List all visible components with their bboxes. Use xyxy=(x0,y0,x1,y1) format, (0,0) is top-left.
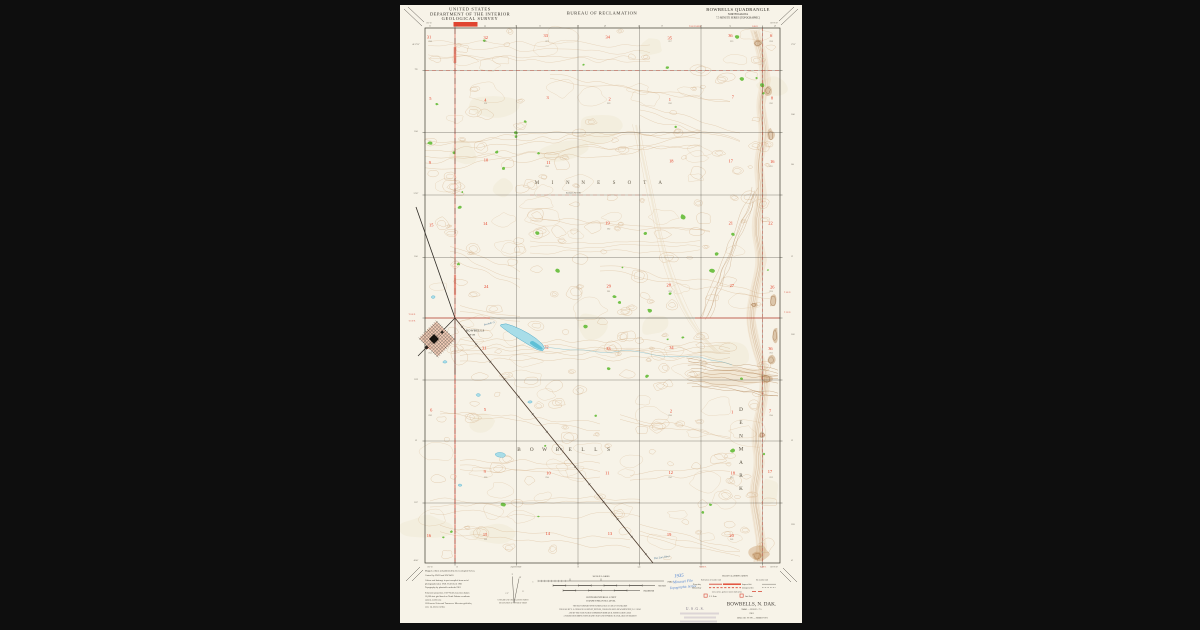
svg-text:1901: 1901 xyxy=(484,539,488,541)
svg-text:102°07'30": 102°07'30" xyxy=(770,22,778,25)
svg-text:2: 2 xyxy=(608,97,610,102)
svg-text:A FOLDER DESCRIBING TOPOGRAPHI: A FOLDER DESCRIBING TOPOGRAPHIC MAPS AND… xyxy=(563,615,637,618)
svg-text:S: S xyxy=(607,447,610,453)
svg-text:system, north zone: system, north zone xyxy=(425,600,441,602)
svg-text:D: D xyxy=(739,407,743,413)
svg-text:Culture and drainage in part c: Culture and drainage in part compiled fr… xyxy=(425,579,469,582)
svg-text:BOWBELLS: BOWBELLS xyxy=(466,329,485,333)
svg-text:M: M xyxy=(535,181,540,186)
svg-text:zone 14, shown in blue: zone 14, shown in blue xyxy=(425,607,445,609)
svg-text:ROAD CLASSIFICATION: ROAD CLASSIFICATION xyxy=(722,575,748,578)
svg-text:Control by USGS and USC&GS: Control by USGS and USC&GS xyxy=(425,575,454,577)
svg-text:2538: 2538 xyxy=(791,524,795,526)
svg-text:102°15': 102°15' xyxy=(426,22,432,25)
svg-text:1968: 1968 xyxy=(428,41,432,43)
svg-text:R.88.W: R.88.W xyxy=(752,26,758,28)
svg-text:Bowbells No 1 SE: Bowbells No 1 SE xyxy=(566,193,582,195)
svg-text:N: N xyxy=(566,181,570,186)
svg-text:T. 160 N.: T. 160 N. xyxy=(760,566,767,568)
svg-text:1942: 1942 xyxy=(668,477,672,479)
svg-text:AND BY THE STATE WATER COMMISS: AND BY THE STATE WATER COMMISSION BISMAR… xyxy=(569,611,632,614)
svg-text:Heavy-duty: Heavy-duty xyxy=(693,584,701,586)
svg-text:Topography by planetable metho: Topography by planetable methods 1961 xyxy=(425,586,461,589)
svg-text:1946: 1946 xyxy=(428,352,432,354)
svg-text:State Route: State Route xyxy=(745,596,753,598)
svg-text:57'30": 57'30" xyxy=(791,44,796,46)
svg-text:1944: 1944 xyxy=(545,477,549,479)
svg-text:1908: 1908 xyxy=(769,41,773,43)
svg-text:1923: 1923 xyxy=(730,41,734,43)
svg-text:25: 25 xyxy=(429,26,431,28)
svg-text:1926: 1926 xyxy=(484,477,488,479)
svg-text:1966: 1966 xyxy=(668,415,672,417)
svg-text:Mapped, edited, and published: Mapped, edited, and published by the Geo… xyxy=(425,570,476,573)
svg-text:1000-meter Universal Transvers: 1000-meter Universal Transverse Mercator… xyxy=(425,602,472,605)
svg-text:N: N xyxy=(581,181,585,186)
svg-text:1945: 1945 xyxy=(730,539,734,541)
svg-text:A: A xyxy=(658,181,662,186)
svg-text:SCALE 1:24000: SCALE 1:24000 xyxy=(593,575,610,578)
svg-text:1969: 1969 xyxy=(428,415,432,417)
svg-text:11: 11 xyxy=(546,160,550,165)
svg-text:POP 588: POP 588 xyxy=(468,334,475,336)
svg-text:1961: 1961 xyxy=(607,291,611,293)
svg-text:47: 47 xyxy=(456,26,458,28)
svg-text:BUREAU OF RECLAMATION: BUREAU OF RECLAMATION xyxy=(567,11,638,16)
svg-text:68: 68 xyxy=(577,26,579,28)
svg-text:E: E xyxy=(739,420,742,426)
svg-text:48°57'30": 48°57'30" xyxy=(412,43,419,46)
svg-text:GEOLOGICAL SURVEY: GEOLOGICAL SURVEY xyxy=(442,16,499,21)
svg-text:2537: 2537 xyxy=(414,502,418,504)
svg-text:102°15': 102°15' xyxy=(427,566,433,569)
svg-text:U.S.G.S.: U.S.G.S. xyxy=(686,607,705,611)
svg-text:48: 48 xyxy=(774,26,776,28)
svg-text:DMA 3111 IV SW — SERIES V871: DMA 3111 IV SW — SERIES V871 xyxy=(737,617,768,620)
svg-text:T. 160 N.: T. 160 N. xyxy=(784,292,791,294)
svg-text:THIS MAP COMPLIES WITH NATIONA: THIS MAP COMPLIES WITH NATIONAL MAP ACCU… xyxy=(573,605,627,608)
svg-text:N4845 — W10215 / 7.5: N4845 — W10215 / 7.5 xyxy=(741,609,761,611)
svg-text:1911: 1911 xyxy=(484,41,488,43)
svg-text:K: K xyxy=(739,486,743,492)
svg-text:E: E xyxy=(597,181,600,186)
svg-text:DATUM IS MEAN SEA LEVEL: DATUM IS MEAN SEA LEVEL xyxy=(586,600,616,603)
svg-text:W: W xyxy=(542,447,547,453)
svg-text:1962: 1962 xyxy=(668,103,672,105)
svg-text:T.161.N R.89.W: T.161.N R.89.W xyxy=(689,26,701,28)
svg-text:2541: 2541 xyxy=(414,256,418,258)
svg-text:33: 33 xyxy=(539,26,541,28)
svg-text:32: 32 xyxy=(544,344,548,349)
svg-text:12: 12 xyxy=(669,470,673,475)
svg-text:M: M xyxy=(739,447,744,453)
svg-text:B: B xyxy=(556,447,560,453)
svg-text:FOR SALE BY U. S. GEOLOGICAL S: FOR SALE BY U. S. GEOLOGICAL SURVEY, DEN… xyxy=(559,608,641,611)
svg-text:N: N xyxy=(739,433,743,439)
svg-text:18: 18 xyxy=(515,26,517,28)
svg-text:1962: 1962 xyxy=(607,228,611,230)
svg-text:E: E xyxy=(569,447,572,453)
svg-text:50: 50 xyxy=(661,26,663,28)
svg-text:1933: 1933 xyxy=(769,352,773,354)
svg-text:2546: 2546 xyxy=(791,114,795,116)
svg-text:1949: 1949 xyxy=(545,166,549,168)
svg-text:Polyconic projection. 1927 No: Polyconic projection. 1927 North America… xyxy=(425,592,470,595)
svg-text:CONTOUR INTERVAL 5 FEET: CONTOUR INTERVAL 5 FEET xyxy=(586,596,617,599)
svg-text:BOWBELLS, N. DAK.: BOWBELLS, N. DAK. xyxy=(727,602,776,608)
svg-text:48°45': 48°45' xyxy=(414,559,419,562)
svg-text:T. 159 N.: T. 159 N. xyxy=(784,312,791,314)
svg-text:7000 FEET: 7000 FEET xyxy=(658,586,666,588)
svg-text:Dry weather roads: Dry weather roads xyxy=(756,580,768,582)
svg-text:102°07'30": 102°07'30" xyxy=(770,566,778,569)
svg-text:1961: 1961 xyxy=(749,613,753,615)
svg-text:21: 21 xyxy=(729,220,733,225)
svg-text:40: 40 xyxy=(638,26,640,28)
svg-text:1944: 1944 xyxy=(769,415,773,417)
svg-text:O: O xyxy=(628,181,632,186)
svg-text:7.5 MINUTE SERIES (TOPOGRAPHIC: 7.5 MINUTE SERIES (TOPOGRAPHIC) xyxy=(716,17,760,20)
svg-text:A: A xyxy=(739,460,743,466)
svg-text:Medium-duty: Medium-duty xyxy=(692,588,701,590)
svg-text:U. S. Route: U. S. Route xyxy=(709,596,717,598)
svg-text:799: 799 xyxy=(415,69,418,71)
svg-text:1951: 1951 xyxy=(769,166,773,168)
svg-text:1: 1 xyxy=(669,97,671,102)
svg-text:14: 14 xyxy=(729,26,731,28)
svg-text:52'30": 52'30" xyxy=(414,193,419,195)
svg-text:2540000 FEET: 2540000 FEET xyxy=(510,567,522,569)
svg-text:2545: 2545 xyxy=(414,131,418,133)
svg-text:11: 11 xyxy=(605,471,609,476)
svg-text:10,000-foot grid based on Nort: 10,000-foot grid based on North Dakota c… xyxy=(425,595,470,598)
svg-text:T. 159 N.: T. 159 N. xyxy=(408,321,416,323)
svg-text:photographs taken 1958. Field: photographs taken 1958. Field check 1961 xyxy=(425,583,462,586)
svg-text:T. 159 N.: T. 159 N. xyxy=(700,566,707,568)
svg-text:1: 1 xyxy=(731,410,733,415)
svg-text:BOWBELLS QUADRANGLE: BOWBELLS QUADRANGLE xyxy=(706,7,770,12)
svg-text:2542: 2542 xyxy=(791,334,795,336)
svg-text:44: 44 xyxy=(484,26,486,28)
svg-text:B: B xyxy=(517,447,521,453)
svg-text:O: O xyxy=(530,447,534,453)
svg-text:1910: 1910 xyxy=(730,477,734,479)
svg-text:1909: 1909 xyxy=(607,103,611,105)
svg-text:48: 48 xyxy=(604,26,606,28)
svg-text:1931: 1931 xyxy=(484,103,488,105)
svg-text:1926: 1926 xyxy=(769,291,773,293)
svg-text:T: T xyxy=(643,181,646,186)
svg-text:L: L xyxy=(594,447,597,453)
svg-text:R: R xyxy=(739,473,743,479)
svg-text:Improved dirt: Improved dirt xyxy=(742,584,752,586)
svg-text:S: S xyxy=(613,181,616,186)
svg-text:Unimproved dirt: Unimproved dirt xyxy=(742,588,754,590)
svg-text:32: 32 xyxy=(484,35,488,40)
svg-text:364: 364 xyxy=(791,164,794,166)
svg-text:1963: 1963 xyxy=(769,103,773,105)
svg-text:1 KILOMETER: 1 KILOMETER xyxy=(643,591,655,593)
svg-text:31: 31 xyxy=(482,346,486,351)
svg-text:1959: 1959 xyxy=(769,477,773,479)
svg-text:1917: 1917 xyxy=(668,41,672,43)
svg-text:2: 2 xyxy=(670,409,672,414)
svg-text:2539: 2539 xyxy=(414,379,418,381)
svg-text:1: 1 xyxy=(533,581,534,583)
svg-text:22: 22 xyxy=(768,220,772,225)
svg-text:1972: 1972 xyxy=(545,41,549,43)
svg-text:T. 160 N.: T. 160 N. xyxy=(408,314,416,316)
svg-text:545: 545 xyxy=(638,567,641,569)
svg-text:L: L xyxy=(581,447,584,453)
svg-text:1920: 1920 xyxy=(668,291,672,293)
svg-text:31: 31 xyxy=(427,35,431,40)
